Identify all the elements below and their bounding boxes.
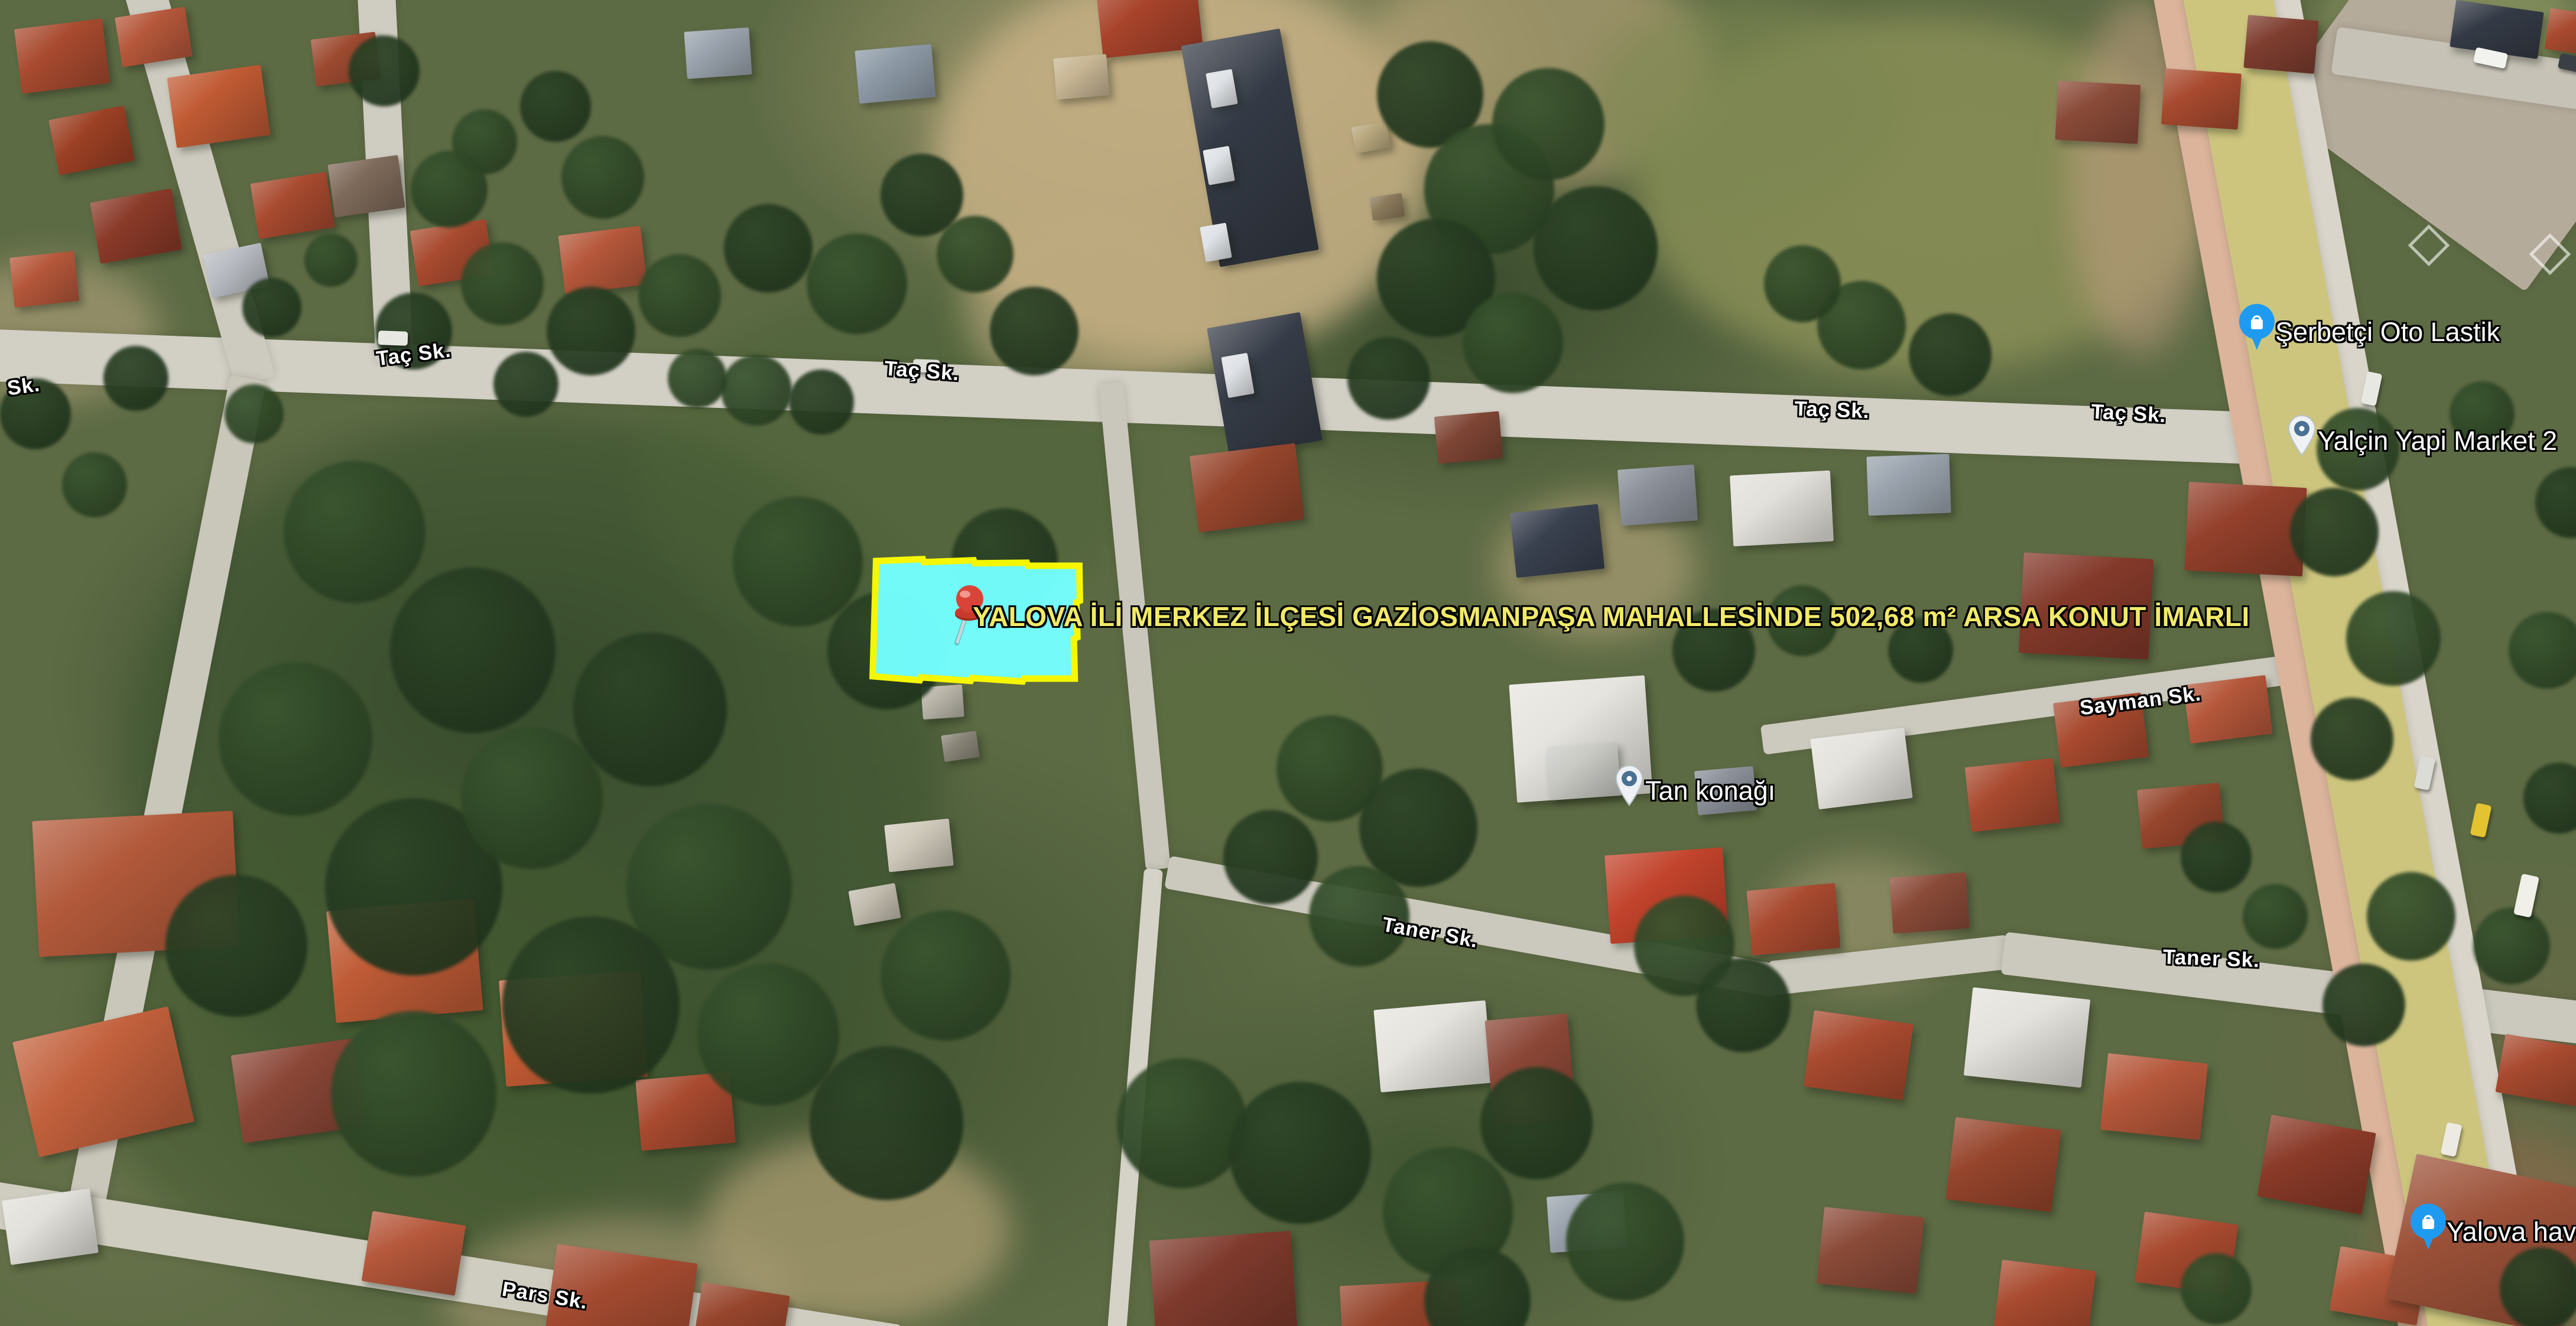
street-label: Taç Sk.: [2091, 400, 2167, 428]
building: [48, 105, 135, 175]
tree: [1764, 245, 1841, 322]
building: [1889, 873, 1970, 934]
poi-shop[interactable]: Yalova havalandı: [2409, 1202, 2448, 1255]
tree: [284, 461, 425, 603]
building: [1746, 883, 1840, 956]
car: [2513, 874, 2539, 918]
tree: [1463, 293, 1563, 393]
building: [9, 251, 79, 307]
shop-pin-icon: [2237, 303, 2276, 352]
poi-label: Yalova havalandı: [2447, 1217, 2576, 1247]
tree: [242, 278, 301, 337]
building: [90, 189, 182, 264]
building: [2243, 15, 2318, 74]
building: [1810, 728, 1912, 810]
tree: [1492, 68, 1604, 180]
street-label: Sk.: [6, 372, 42, 400]
poi-label: Tan konağı: [1645, 776, 1775, 806]
tree: [502, 916, 680, 1094]
tree: [493, 352, 558, 417]
building: [1373, 1000, 1492, 1092]
building: [2161, 69, 2242, 130]
tree: [2181, 822, 2252, 893]
tree: [547, 287, 635, 375]
building: [884, 818, 954, 872]
building: [684, 27, 752, 79]
tree: [1117, 1058, 1247, 1188]
tree: [461, 242, 544, 325]
building: [2184, 482, 2307, 576]
parcel-label: YALOVA İLİ MERKEZ İLÇESİ GAZİOSMANPAŞA M…: [973, 601, 2250, 633]
tree: [331, 1011, 496, 1176]
place-pin-icon: [2285, 413, 2319, 456]
building: [1053, 54, 1110, 100]
tree: [304, 234, 358, 287]
building: [2055, 80, 2140, 144]
building: [1866, 454, 1951, 516]
tree: [2346, 591, 2441, 686]
building: [1730, 471, 1834, 547]
building: [2, 1188, 99, 1265]
tree: [62, 452, 127, 517]
building: [1804, 1010, 1914, 1100]
tree: [2500, 1247, 2576, 1326]
tree: [2523, 763, 2576, 834]
tree: [807, 234, 907, 334]
building: [558, 226, 647, 294]
tree: [1347, 337, 1430, 420]
building: [1149, 1231, 1297, 1326]
tree: [561, 136, 644, 219]
tree: [390, 568, 556, 733]
building: [1369, 193, 1405, 221]
tree: [165, 875, 307, 1017]
building: [1547, 743, 1621, 800]
street-label: Taç Sk.: [1794, 397, 1870, 423]
satellite-map[interactable]: YALOVA İLİ MERKEZ İLÇESİ GAZİOSMANPAŞA M…: [0, 0, 2576, 1326]
tree: [1223, 810, 1318, 904]
building: [1945, 1117, 2061, 1212]
building: [1993, 1260, 2096, 1326]
tree: [225, 384, 284, 443]
building: [1190, 443, 1305, 533]
tree: [411, 151, 488, 228]
tree: [103, 346, 168, 411]
building: [1817, 1207, 1925, 1293]
tree: [1566, 1182, 1684, 1301]
tree: [724, 204, 813, 293]
building: [250, 171, 334, 239]
tree: [733, 497, 863, 627]
tree: [2473, 907, 2550, 984]
poi-place[interactable]: Yalçin Yapi Market 2: [2285, 413, 2319, 459]
tree: [349, 35, 420, 106]
poi-place[interactable]: Tan konağı: [1612, 763, 1646, 809]
car: [2470, 803, 2492, 838]
building: [14, 18, 110, 93]
building: [1965, 758, 2060, 832]
building: [1617, 465, 1698, 526]
tree: [2181, 1253, 2252, 1324]
tree: [2322, 964, 2405, 1046]
building: [1434, 411, 1503, 463]
ground-patch: [1590, 0, 1897, 213]
tree: [990, 287, 1079, 375]
place-pin-icon: [1612, 763, 1646, 806]
building: [2257, 1114, 2376, 1214]
tree: [1229, 1082, 1371, 1224]
tree: [697, 964, 839, 1105]
tree: [573, 633, 727, 786]
tree: [810, 1046, 963, 1200]
tree: [2367, 872, 2455, 961]
tree: [881, 910, 1011, 1040]
tree: [2290, 488, 2379, 576]
building: [362, 1211, 466, 1296]
tree: [881, 154, 963, 236]
tree: [2535, 467, 2576, 538]
building: [167, 64, 270, 148]
tree: [1696, 958, 1791, 1052]
building: [2100, 1053, 2208, 1140]
tree: [1909, 313, 1992, 396]
building: [855, 44, 935, 104]
poi-label: Yalçin Yapi Market 2: [2318, 426, 2557, 456]
tree: [937, 216, 1013, 293]
building: [1964, 987, 2091, 1088]
tree: [1534, 186, 1658, 310]
tree: [219, 662, 372, 816]
shop-pin-icon: [2409, 1202, 2448, 1252]
poi-shop[interactable]: Şerbetçi Oto Lastik: [2237, 303, 2276, 355]
tree: [789, 369, 854, 435]
tree: [638, 254, 721, 337]
tree: [2509, 612, 2576, 689]
building: [327, 155, 405, 218]
poi-label: Şerbetçi Oto Lastik: [2275, 317, 2500, 348]
building: [2495, 1034, 2576, 1107]
tree: [668, 349, 727, 408]
building: [1510, 504, 1605, 578]
tree: [461, 727, 603, 869]
building: [941, 731, 980, 762]
street-label: Taner Sk.: [2162, 945, 2260, 972]
tree: [2311, 698, 2393, 780]
tree: [1480, 1067, 1593, 1179]
tree: [2243, 884, 2308, 949]
tree: [520, 71, 591, 142]
tree: [721, 355, 792, 426]
